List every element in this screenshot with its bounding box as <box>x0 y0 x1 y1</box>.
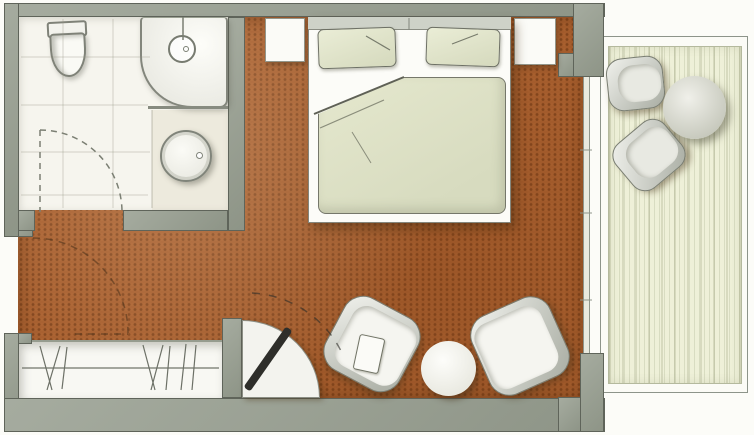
shower-head-icon <box>168 35 196 63</box>
wall-bathroom-south-left <box>18 210 35 231</box>
wall-bathroom-divider <box>228 17 245 231</box>
wall-bottom <box>4 398 605 432</box>
wall-left-upper <box>4 3 19 237</box>
shower-partition <box>148 106 228 109</box>
balcony-window-glass <box>583 70 590 353</box>
nightstand-left <box>265 18 305 62</box>
wall-bathroom-south-right <box>123 210 228 231</box>
balcony-table <box>663 76 726 139</box>
pillow-left <box>317 27 396 70</box>
washbasin <box>160 130 212 182</box>
washbasin-drain-icon <box>196 152 203 159</box>
toilet <box>45 20 94 78</box>
wall-pillar-top-right <box>573 3 604 77</box>
coffee-table <box>421 341 476 396</box>
pillow-right <box>425 27 500 68</box>
wall-left-lower-foot <box>18 333 32 344</box>
wall-tv-post <box>222 318 242 398</box>
wall-pillar-bottom-right <box>580 353 604 432</box>
balcony-chair-top <box>604 54 666 113</box>
wall-top <box>4 3 605 17</box>
wall-pillar-top-right-foot <box>558 53 574 77</box>
toilet-bowl <box>49 32 87 78</box>
balcony-chair-top-seat <box>616 62 663 103</box>
floor-plan-canvas <box>0 0 754 435</box>
wardrobe-niche <box>19 340 222 398</box>
nightstand-right <box>514 18 556 65</box>
wall-pillar-bottom-right-foot <box>558 397 581 432</box>
